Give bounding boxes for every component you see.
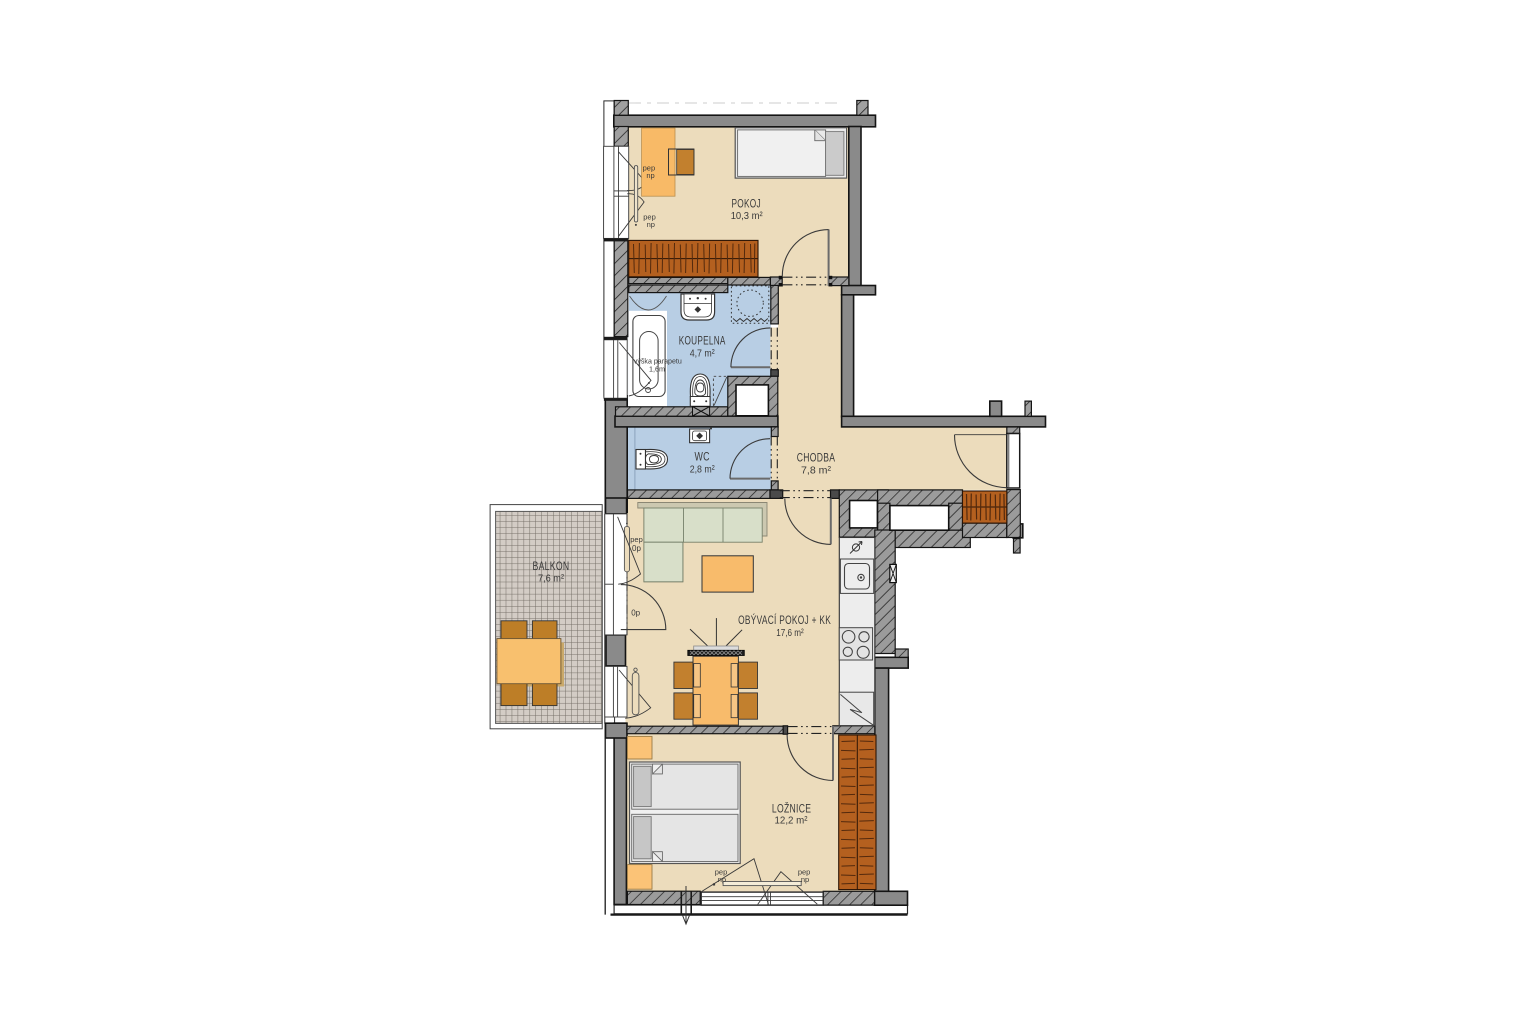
svg-text:7,6 m²: 7,6 m² [538,573,564,585]
svg-text:pep: pep [630,535,643,544]
svg-text:0p: 0p [632,544,641,553]
svg-text:np: np [801,875,809,884]
svg-text:OBÝVACÍ POKOJ + KK: OBÝVACÍ POKOJ + KK [738,614,831,627]
svg-text:12,2 m²: 12,2 m² [775,815,808,827]
svg-text:np: np [718,875,726,884]
svg-text:2,8 m²: 2,8 m² [690,464,715,476]
svg-text:KOUPELNA: KOUPELNA [679,336,726,348]
svg-text:0p: 0p [631,609,640,618]
svg-text:BALKON: BALKON [533,561,570,573]
svg-text:10,3 m²: 10,3 m² [731,210,763,222]
svg-text:np: np [647,220,655,229]
svg-text:7,8 m²: 7,8 m² [801,465,831,477]
svg-text:1,6m: 1,6m [649,367,665,374]
svg-text:POKOJ: POKOJ [731,199,761,211]
svg-text:np: np [646,171,654,180]
svg-text:CHODBA: CHODBA [797,453,836,465]
svg-text:4,7 m²: 4,7 m² [690,348,715,360]
svg-text:17,6 m²: 17,6 m² [776,627,804,639]
svg-text:WC: WC [694,450,710,464]
svg-text:výška parapetu: výška parapetu [634,359,682,366]
